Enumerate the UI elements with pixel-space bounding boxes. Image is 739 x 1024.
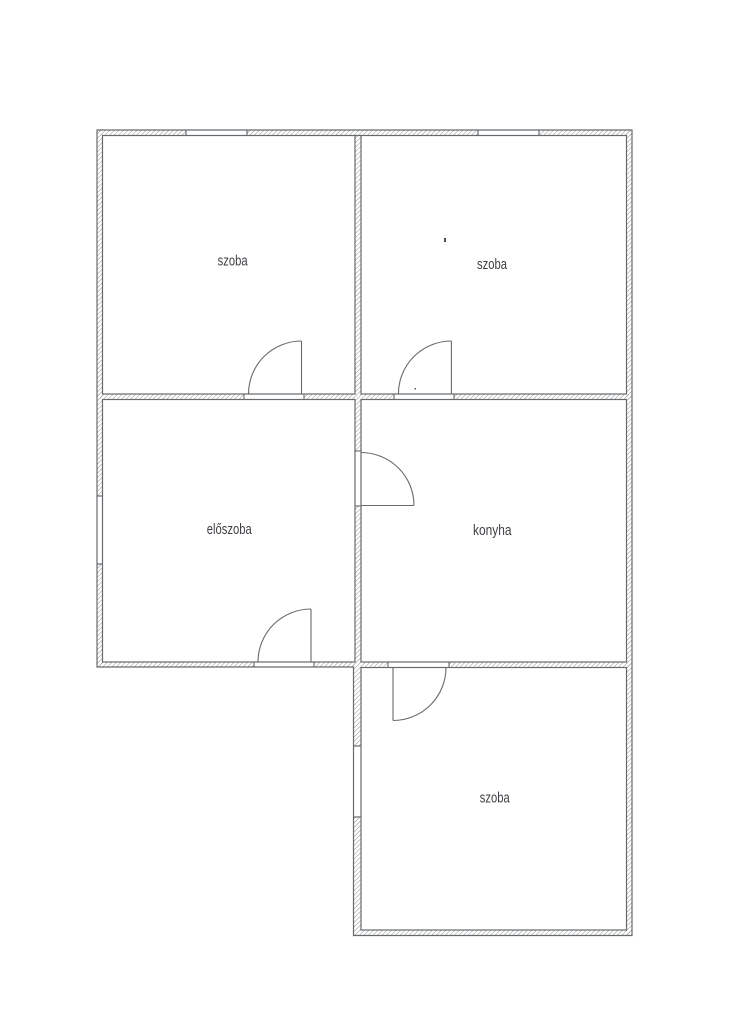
svg-text:szoba: szoba	[480, 791, 511, 807]
svg-text:előszoba: előszoba	[207, 522, 253, 538]
svg-text:szoba: szoba	[218, 254, 249, 270]
svg-text:szoba: szoba	[477, 257, 508, 273]
svg-text:konyha: konyha	[473, 523, 512, 539]
